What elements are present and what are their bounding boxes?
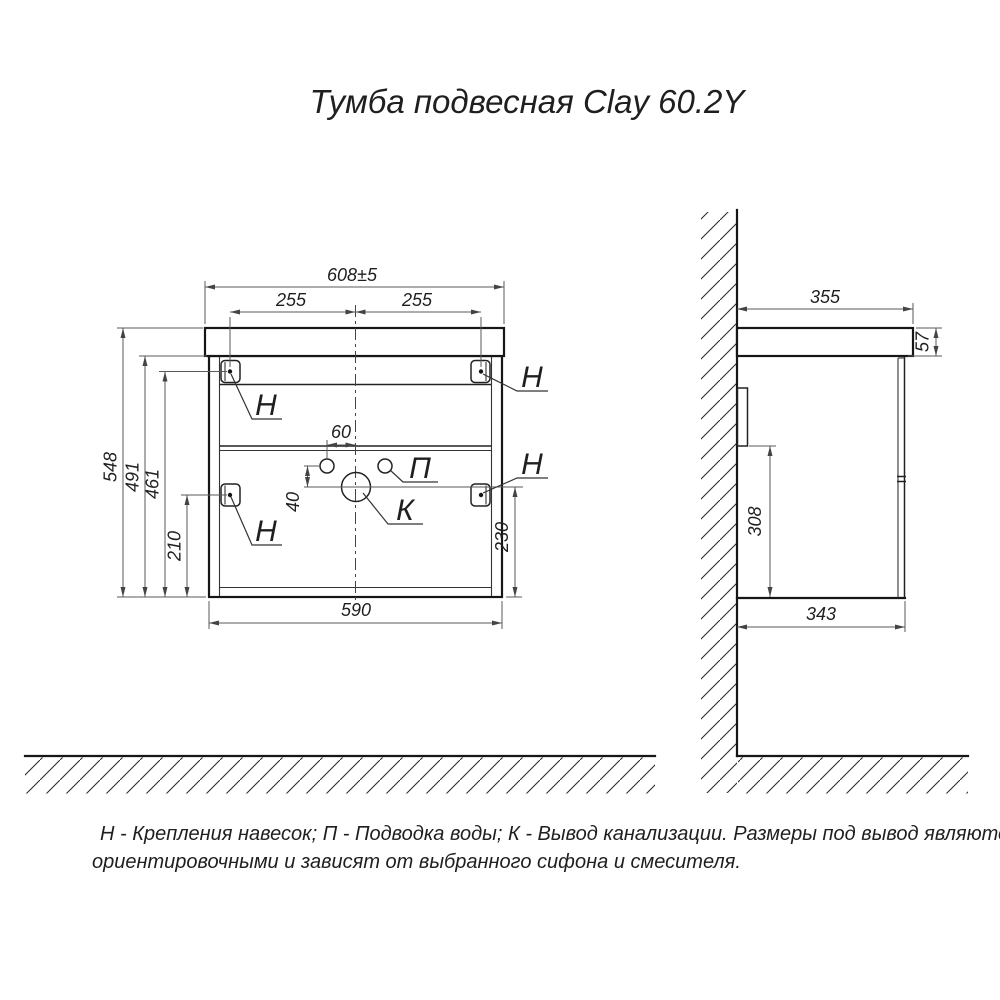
dim-hanger-top: 461 [143, 469, 163, 499]
label-hanger-top-left: Н [255, 389, 277, 422]
floor [25, 756, 968, 794]
front-view: 608±5 255 255 548 491 461 210 60 [101, 265, 549, 629]
wall-hatch [701, 212, 737, 793]
dim-top-thickness: 57 [913, 331, 933, 352]
dim-depth-carcass: 343 [806, 604, 836, 624]
label-water-supply: П [409, 452, 431, 485]
dim-hanger-mid: 210 [165, 531, 185, 562]
countertop-side [737, 328, 913, 356]
note-line-1: Н - Крепления навесок; П - Подводка воды… [100, 823, 1000, 845]
dim-depth-top: 355 [810, 287, 841, 307]
floor-hatch-right [738, 758, 968, 794]
dim-height-carcass: 491 [123, 462, 143, 492]
dim-width-top: 608±5 [327, 265, 378, 285]
dim-drain-drop: 40 [283, 492, 303, 512]
front-carcass [205, 305, 504, 603]
wall-hanger-side [738, 388, 748, 446]
label-hanger-top-right: Н [521, 361, 543, 394]
label-hanger-mid-left: Н [255, 515, 277, 548]
floor-hatch-left [25, 758, 655, 794]
dim-width-carcass: 590 [341, 600, 371, 620]
technical-drawing: Тумба подвесная Clay 60.2Y [0, 0, 1000, 1000]
dim-height-total: 548 [101, 452, 121, 482]
note-line-2: ориентировочными и зависят от выбранного… [92, 851, 741, 873]
dim-drain-height: 230 [492, 522, 512, 553]
dim-hanger-drop: 308 [745, 506, 765, 536]
dim-hanger-left: 255 [275, 290, 307, 310]
countertop-front [205, 328, 504, 356]
dim-water-offset: 60 [331, 422, 351, 442]
dim-hanger-right: 255 [401, 290, 433, 310]
label-hanger-mid-right: Н [521, 448, 543, 481]
side-view: 355 57 308 343 [701, 210, 942, 793]
drawing-title: Тумба подвесная Clay 60.2Y [310, 83, 747, 120]
technical-drawing-page: Тумба подвесная Clay 60.2Y [0, 0, 1000, 1000]
legend-note: Н - Крепления навесок; П - Подводка воды… [92, 823, 1000, 873]
side-cabinet [737, 328, 913, 598]
label-drain: К [396, 494, 416, 527]
